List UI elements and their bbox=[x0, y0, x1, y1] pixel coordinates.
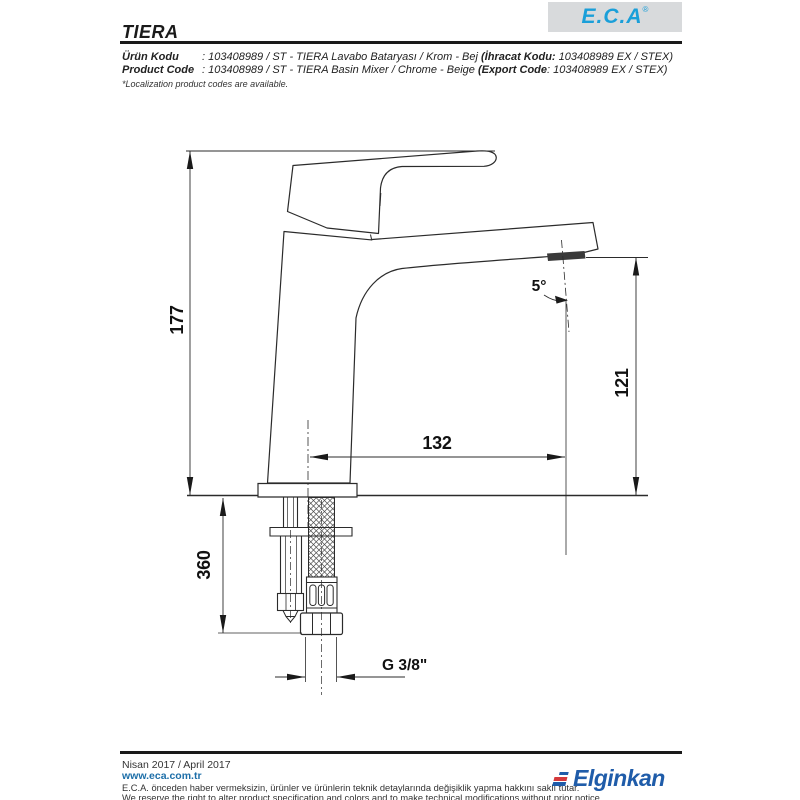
dim-label-360: 360 bbox=[194, 550, 214, 579]
dim-label-132: 132 bbox=[422, 433, 451, 453]
technical-drawing: 177 121 132 360 bbox=[0, 0, 800, 800]
mounting-hardware bbox=[270, 498, 352, 696]
elginkan-logo-text: Elginkan bbox=[573, 765, 665, 792]
dim-label-angle: 5° bbox=[532, 278, 547, 295]
datasheet-page: TIERA E.C.A® Ürün Kodu: 103408989 / ST -… bbox=[0, 0, 800, 800]
footer-divider bbox=[120, 751, 682, 754]
footer-disclaimer-tr: E.C.A. önceden haber vermeksizin, ürünle… bbox=[122, 783, 579, 793]
footer-disclaimer-en: We reserve the right to alter product sp… bbox=[122, 793, 602, 800]
dimension-spout-height: 121 bbox=[586, 258, 648, 496]
faucet-handle bbox=[288, 151, 497, 234]
dim-label-121: 121 bbox=[612, 368, 632, 397]
elginkan-logo: Elginkan bbox=[554, 765, 665, 792]
elginkan-bars-icon bbox=[552, 772, 568, 786]
dim-label-177: 177 bbox=[167, 305, 187, 334]
dim-label-thread: G 3/8" bbox=[382, 657, 427, 674]
dimension-thread: G 3/8" bbox=[275, 637, 427, 682]
footer-website-link[interactable]: www.eca.com.tr bbox=[122, 770, 202, 782]
